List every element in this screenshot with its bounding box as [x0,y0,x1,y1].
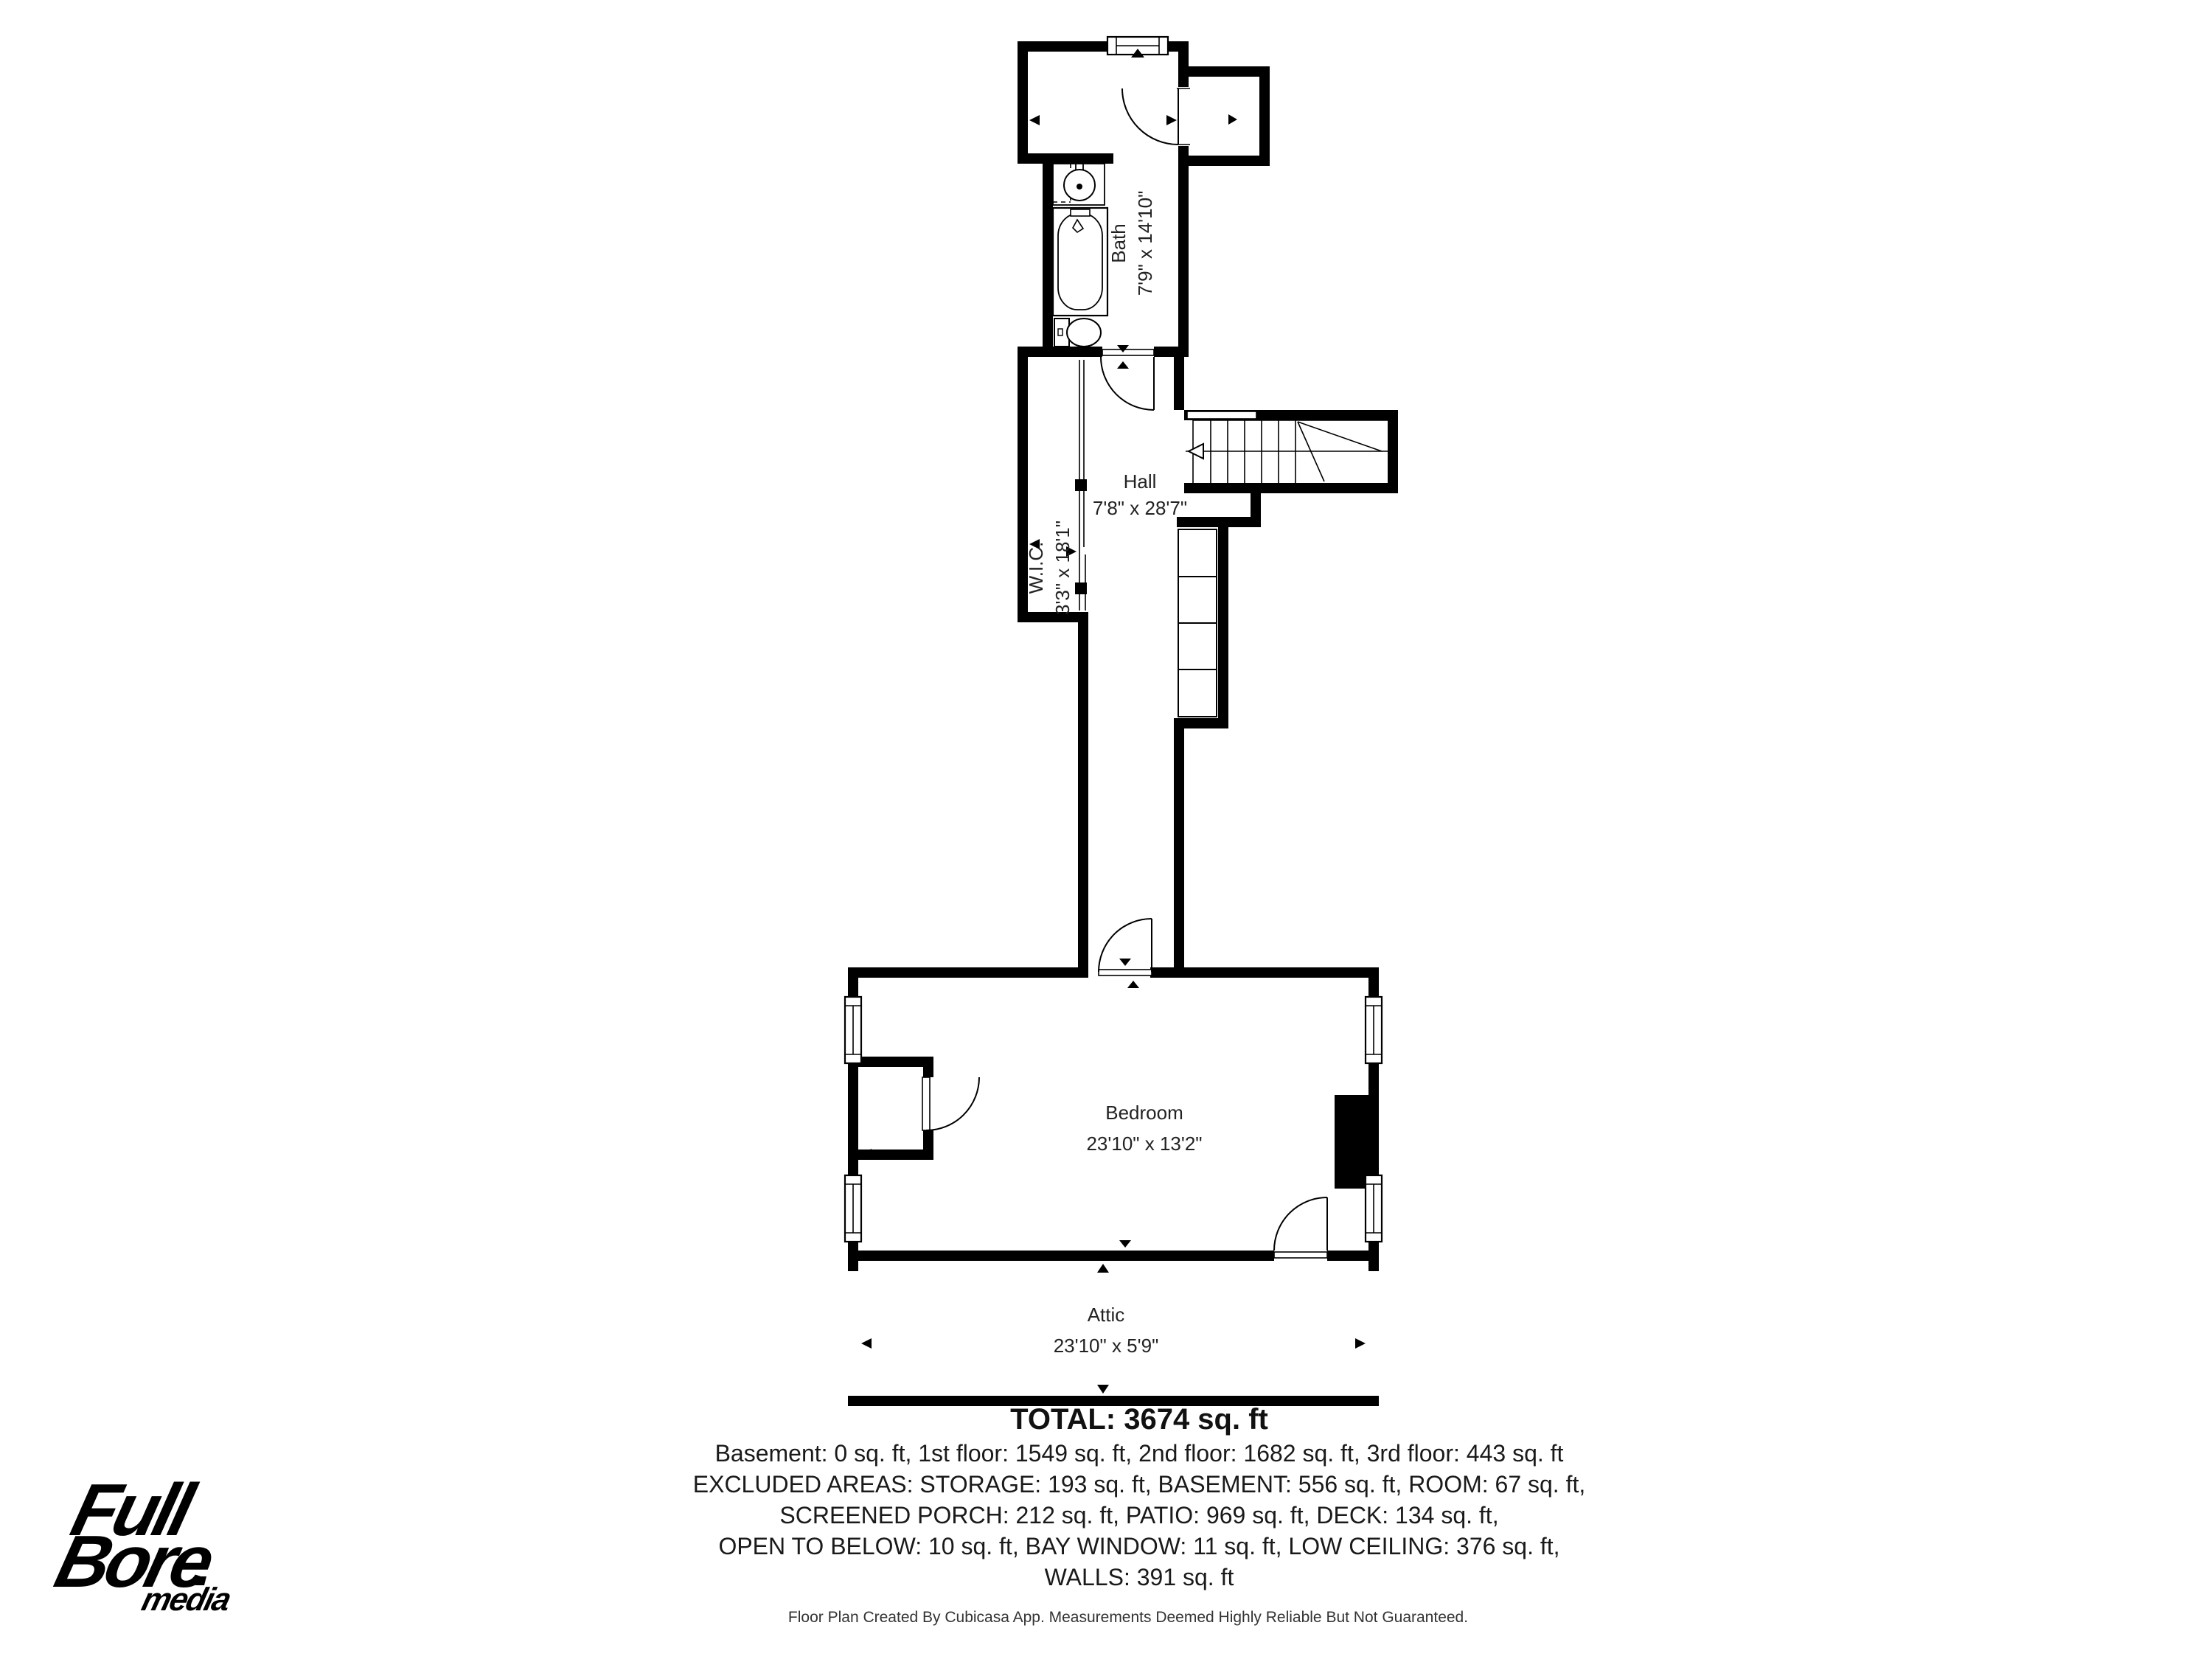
label-wic-dims: 3'3" x 18'1" [1051,521,1074,615]
floor-plan-page: Bath 7'9" x 14'10" W.I.C. 3'3" x 18'1" H… [0,0,2212,1659]
label-attic-name: Attic [1088,1304,1125,1326]
label-bath-dims: 7'9" x 14'10" [1134,191,1156,296]
window-bedroom-right-upper [1366,997,1382,1063]
summary-floors-text: Basement: 0 sq. ft, 1st floor: 1549 sq. … [715,1440,1564,1467]
label-attic-dims: 23'10" x 5'9" [1054,1335,1159,1357]
label-bedroom-name: Bedroom [1105,1102,1183,1124]
window-bedroom-right-lower [1366,1175,1382,1242]
staircase [1186,411,1388,483]
summary-porch-text: SCREENED PORCH: 212 sq. ft, PATIO: 969 s… [779,1502,1498,1528]
total-area-text: TOTAL: 3674 sq. ft [1010,1403,1268,1436]
bathtub [1053,208,1107,316]
label-bath-name: Bath [1107,223,1130,263]
label-bedroom-dims: 23'10" x 13'2" [1086,1133,1202,1155]
summary-openbelow-text: OPEN TO BELOW: 10 sq. ft, BAY WINDOW: 11… [718,1533,1559,1559]
logo-word-media: media [139,1582,234,1618]
summary-walls-text: WALLS: 391 sq. ft [1045,1564,1234,1590]
disclaimer-text: Floor Plan Created By Cubicasa App. Meas… [788,1609,1468,1626]
label-hall-name: Hall [1124,470,1157,493]
chimney-mass [1335,1095,1368,1189]
window-bedroom-left-lower [845,1175,861,1242]
label-wic-name: W.I.C. [1025,542,1047,594]
shelf-unit [1178,529,1217,717]
window-bedroom-left-upper [845,997,861,1063]
sink [1053,164,1105,205]
toilet [1054,319,1101,347]
summary-excluded-text: EXCLUDED AREAS: STORAGE: 193 sq. ft, BAS… [693,1471,1586,1498]
label-hall-dims: 7'8" x 28'7" [1093,497,1187,519]
